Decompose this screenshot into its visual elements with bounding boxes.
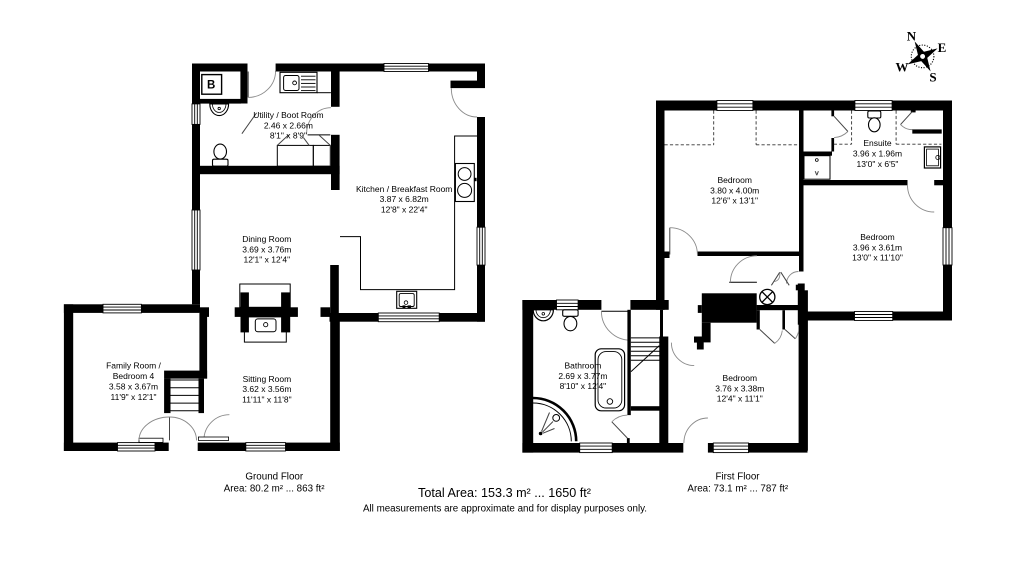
svg-text:Dining Room: Dining Room <box>242 234 291 244</box>
svg-text:11'11" x 11'8": 11'11" x 11'8" <box>242 394 291 404</box>
svg-text:3.76 x 3.38m: 3.76 x 3.38m <box>715 383 764 393</box>
svg-text:First Floor: First Floor <box>715 472 760 483</box>
svg-text:3.69 x 3.76m: 3.69 x 3.76m <box>242 244 291 254</box>
svg-text:3.80 x 4.00m: 3.80 x 4.00m <box>710 186 759 196</box>
svg-text:13'0" x 6'5": 13'0" x 6'5" <box>857 159 899 169</box>
svg-text:Kitchen / Breakfast Room: Kitchen / Breakfast Room <box>356 184 452 194</box>
svg-text:Bathroom: Bathroom <box>564 361 601 371</box>
svg-text:11'9" x 12'1": 11'9" x 12'1" <box>111 392 157 402</box>
svg-text:12'6" x 13'1": 12'6" x 13'1" <box>711 196 758 206</box>
svg-text:Total Area: 153.3 m² ... 1650: Total Area: 153.3 m² ... 1650 ft² <box>418 486 591 500</box>
svg-text:8'10" x 12'4": 8'10" x 12'4" <box>560 381 607 391</box>
svg-text:12'4" x 11'1": 12'4" x 11'1" <box>717 393 763 403</box>
svg-text:S: S <box>929 70 936 85</box>
svg-text:3.96 x 1.96m: 3.96 x 1.96m <box>853 149 902 159</box>
svg-text:Area: 73.1 m² ... 787 ft²: Area: 73.1 m² ... 787 ft² <box>687 484 788 495</box>
svg-text:2.69 x 3.77m: 2.69 x 3.77m <box>558 371 607 381</box>
svg-text:12'8" x 22'4": 12'8" x 22'4" <box>381 204 428 214</box>
svg-text:13'0" x 11'10": 13'0" x 11'10" <box>852 253 903 263</box>
svg-text:Bedroom 4: Bedroom 4 <box>113 371 155 381</box>
svg-text:B: B <box>207 80 215 92</box>
svg-text:2.46 x 2.66m: 2.46 x 2.66m <box>264 120 313 130</box>
svg-text:Bedroom: Bedroom <box>717 175 752 185</box>
svg-text:Family Room /: Family Room / <box>106 361 161 371</box>
svg-text:12'1" x 12'4": 12'1" x 12'4" <box>243 255 290 265</box>
svg-text:3.96 x 3.61m: 3.96 x 3.61m <box>853 243 902 253</box>
svg-text:Ensuite: Ensuite <box>863 138 892 148</box>
svg-text:3.58 x 3.67m: 3.58 x 3.67m <box>109 382 158 392</box>
svg-text:N: N <box>907 29 917 44</box>
svg-text:Utility / Boot Room: Utility / Boot Room <box>253 110 323 120</box>
svg-text:W: W <box>896 60 909 75</box>
svg-text:Sitting Room: Sitting Room <box>243 374 292 384</box>
svg-text:Area: 80.2 m² ... 863 ft²: Area: 80.2 m² ... 863 ft² <box>224 484 325 495</box>
svg-text:Bedroom: Bedroom <box>723 373 758 383</box>
svg-text:Ground Floor: Ground Floor <box>245 472 303 483</box>
svg-text:E: E <box>938 40 947 55</box>
svg-text:All measurements are approxima: All measurements are approximate and for… <box>363 503 647 514</box>
svg-text:3.62 x 3.56m: 3.62 x 3.56m <box>242 384 291 394</box>
svg-text:8'1" x 8'9": 8'1" x 8'9" <box>270 131 307 141</box>
svg-text:3.87 x 6.82m: 3.87 x 6.82m <box>380 194 429 204</box>
svg-text:Bedroom: Bedroom <box>860 232 895 242</box>
